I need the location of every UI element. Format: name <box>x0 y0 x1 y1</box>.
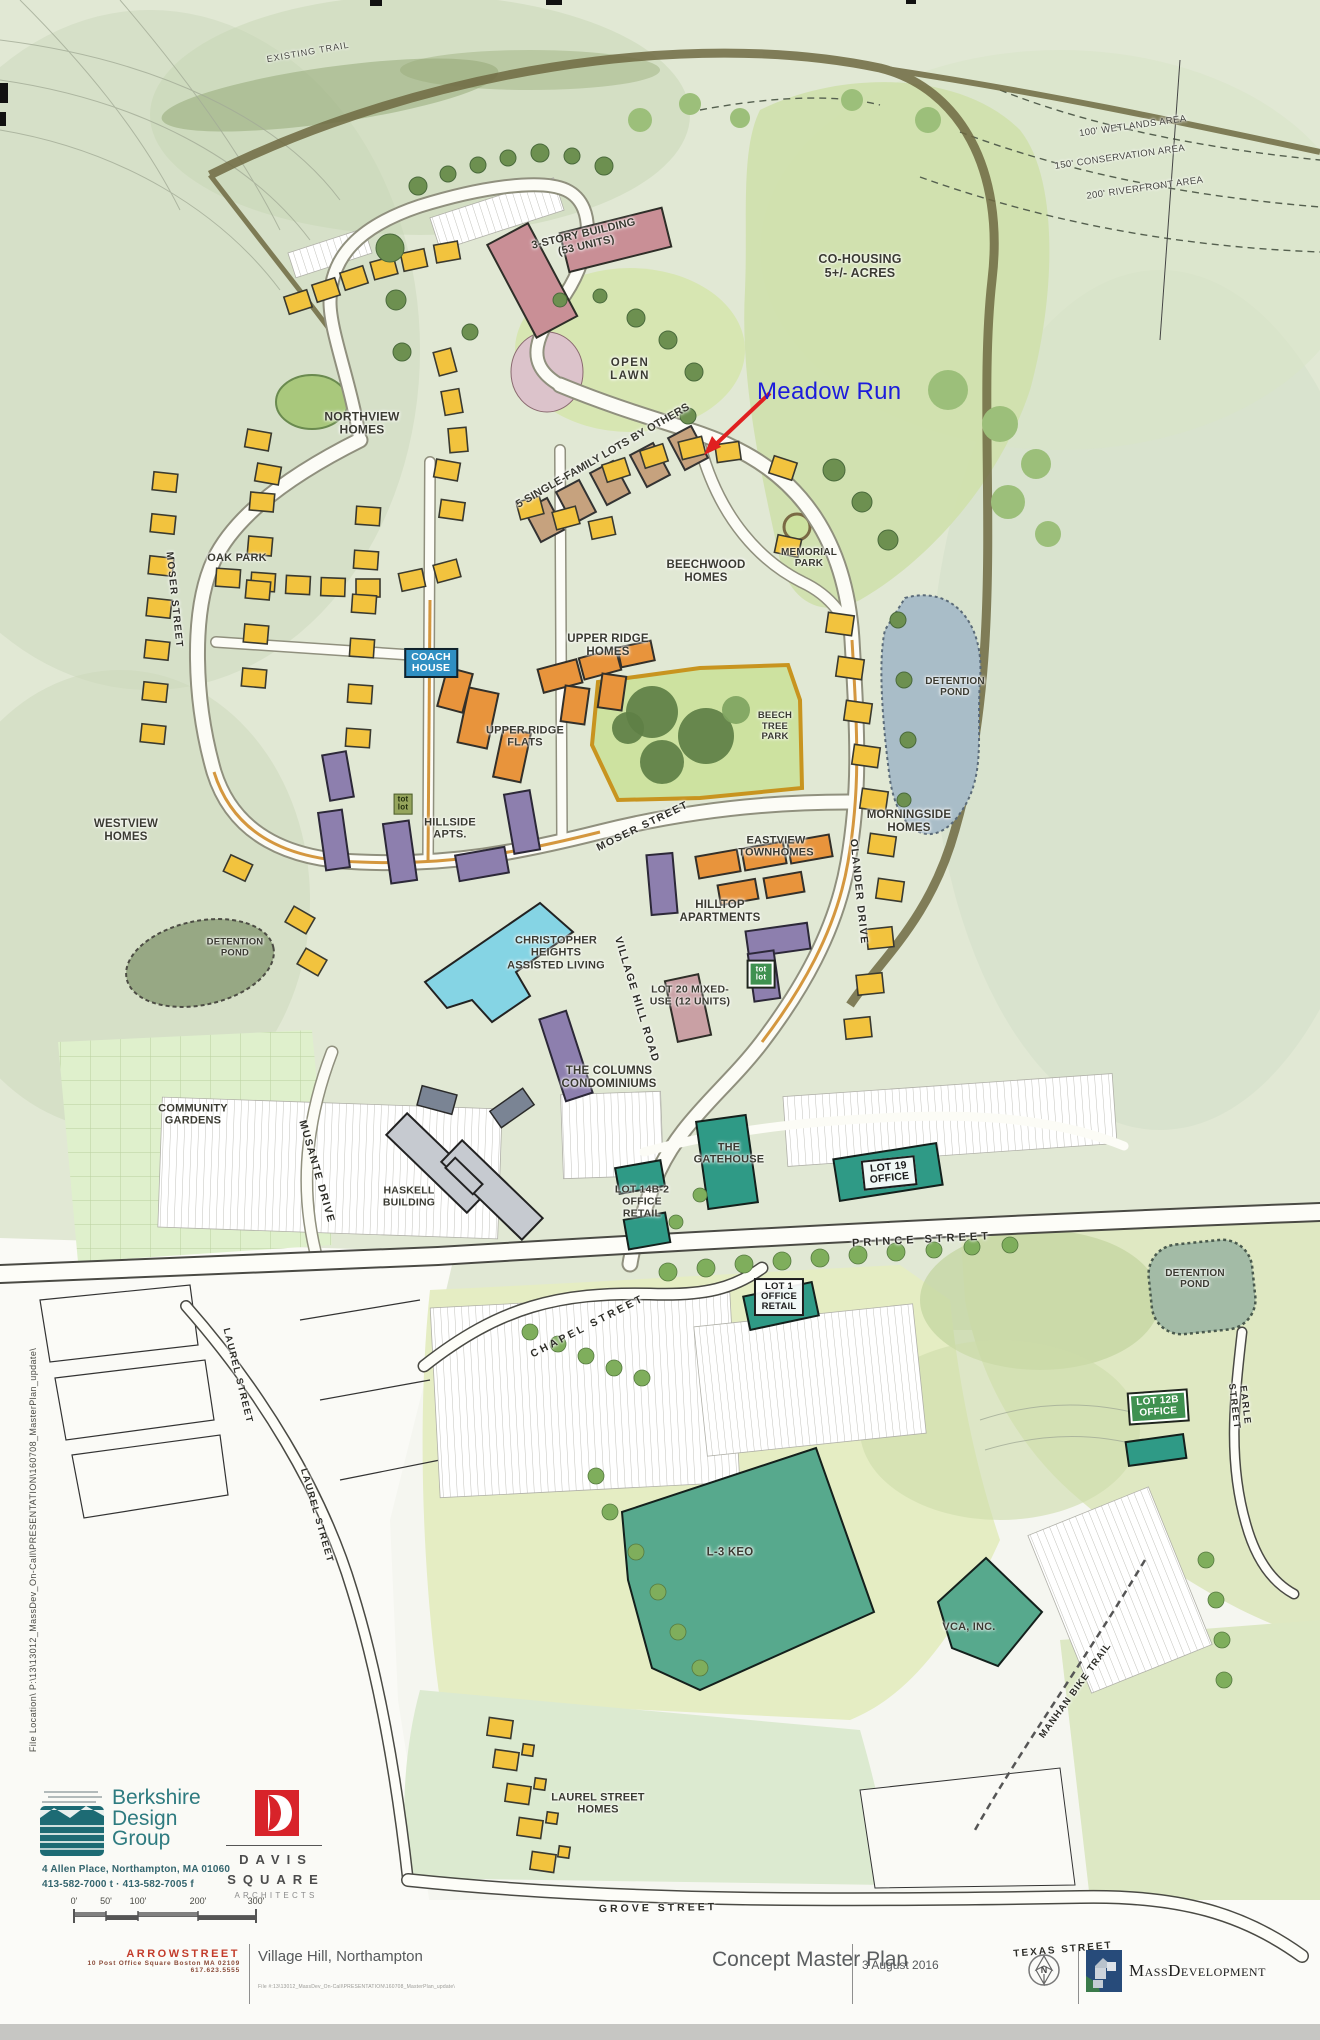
label-laurel-street-homes: LAUREL STREET HOMES <box>551 1792 644 1817</box>
davis-square-logo <box>255 1790 299 1836</box>
label-l3-keo: L-3 KEO <box>707 1547 754 1560</box>
davis-square-name: DAVIS SQUARE <box>226 1850 326 1889</box>
file-location-note: File Location\ P:\13\13012_MassDev_On-Ca… <box>28 1348 38 1752</box>
label-memorial-park: MEMORIAL PARK <box>781 547 837 569</box>
label-lot-12b: LOT 12B OFFICE <box>1129 1391 1187 1424</box>
label-westview-homes: WESTVIEW HOMES <box>94 818 158 844</box>
label-oak-park: OAK PARK <box>207 552 266 564</box>
label-beech-tree-park: BEECH TREE PARK <box>758 711 792 743</box>
arrowstreet-phone: 617.623.5555 <box>56 1967 240 1974</box>
label-coach-house: COACH HOUSE <box>404 648 458 678</box>
arrowstreet-block: ARROWSTREET 10 Post Office Square Boston… <box>56 1948 240 1974</box>
scale-300: 300' <box>248 1896 265 1906</box>
label-hilltop-apartments: HILLTOP APARTMENTS <box>679 899 760 925</box>
titleblock-divider-3 <box>1078 1944 1079 2004</box>
label-lot-1: LOT 1 OFFICE RETAIL <box>754 1278 804 1316</box>
label-grove-street: GROVE STREET <box>599 1902 717 1916</box>
label-upper-ridge-flats: UPPER RIDGE FLATS <box>486 725 564 750</box>
berkshire-phones: 413-582-7000 t · 413-582-7005 f <box>42 1879 194 1890</box>
label-co-housing: CO-HOUSING 5+/- ACRES <box>818 252 901 280</box>
label-eastview-townhomes: EASTVIEW TOWNHOMES <box>738 835 814 860</box>
label-hillside-apts: HILLSIDE APTS. <box>424 817 476 842</box>
site-plan-artwork <box>0 0 1320 2040</box>
label-christopher-heights: CHRISTOPHER HEIGHTS ASSISTED LIVING <box>507 935 605 972</box>
label-open-lawn: OPEN LAWN <box>610 357 650 383</box>
project-title: Village Hill, Northampton <box>258 1948 423 1965</box>
massdevelopment-wordmark: MassDevelopment <box>1129 1961 1266 1981</box>
berkshire-address: 4 Allen Place, Northampton, MA 01060 <box>42 1864 230 1875</box>
massdevelopment-block: MassDevelopment <box>1086 1950 1266 1992</box>
scale-100: 100' <box>130 1896 147 1906</box>
arrowstreet-address: 10 Post Office Square Boston MA 02109 <box>56 1960 240 1967</box>
scale-200: 200' <box>190 1896 207 1906</box>
meadow-run-annotation: Meadow Run <box>757 378 901 406</box>
label-detention-pond-se: DETENTION POND <box>1165 1268 1225 1290</box>
label-lot-20: LOT 20 MIXED- USE (12 UNITS) <box>650 984 730 1008</box>
label-the-gatehouse: THE GATEHOUSE <box>694 1142 765 1167</box>
titleblock-file-note: File #:13\13012_MassDev_On-Call\PRESENTA… <box>258 1984 455 1990</box>
scale-bar-graphic <box>66 1909 276 1923</box>
berkshire-design-group-block: Berkshire Design Group <box>40 1788 201 1858</box>
label-tot-lot-lower: tot lot <box>749 962 774 987</box>
plan-date: 3 August 2016 <box>862 1958 939 1972</box>
massdevelopment-logo <box>1086 1950 1122 1992</box>
label-upper-ridge-homes: UPPER RIDGE HOMES <box>567 633 648 659</box>
berkshire-name: Berkshire Design Group <box>112 1788 201 1850</box>
label-the-columns: THE COLUMNS CONDOMINIUMS <box>561 1065 656 1091</box>
label-detention-pond-west: DETENTION POND <box>207 937 264 958</box>
label-beechwood-homes: BEECHWOOD HOMES <box>666 559 745 585</box>
label-detention-pond-ne: DETENTION POND <box>925 676 985 698</box>
detention-pond-ne-area <box>881 595 980 834</box>
arrowstreet-name: ARROWSTREET <box>56 1948 240 1960</box>
scale-50: 50' <box>100 1896 112 1906</box>
label-lot-14b2: LOT 14B-2 OFFICE RETAIL <box>615 1184 669 1219</box>
label-northview-homes: NORTHVIEW HOMES <box>324 411 399 438</box>
label-vca-inc: VCA, INC. <box>942 1621 995 1633</box>
master-plan-sheet: EXISTING TRAIL 100' WETLANDS AREA 150' C… <box>0 0 1320 2040</box>
label-lot-19: LOT 19 OFFICE <box>861 1155 918 1190</box>
scan-edge-bar <box>0 2024 1320 2040</box>
titleblock-divider-1 <box>249 1944 250 2004</box>
north-compass: N <box>1026 1952 1062 1988</box>
scale-0: 0' <box>71 1896 78 1906</box>
label-haskell-building: HASKELL BUILDING <box>383 1185 435 1209</box>
davis-square-block: DAVIS SQUARE ARCHITECTS <box>226 1790 326 1900</box>
label-community-gardens: COMMUNITY GARDENS <box>158 1103 228 1128</box>
titleblock-divider-2 <box>852 1944 853 2004</box>
compass-north-letter: N <box>1041 1965 1048 1975</box>
berkshire-logo <box>40 1788 104 1858</box>
label-tot-lot-upper: tot lot <box>394 794 413 815</box>
scale-bar: 0' 50' 100' 200' 300' <box>66 1896 276 1926</box>
label-morningside-homes: MORNINGSIDE HOMES <box>867 809 952 835</box>
